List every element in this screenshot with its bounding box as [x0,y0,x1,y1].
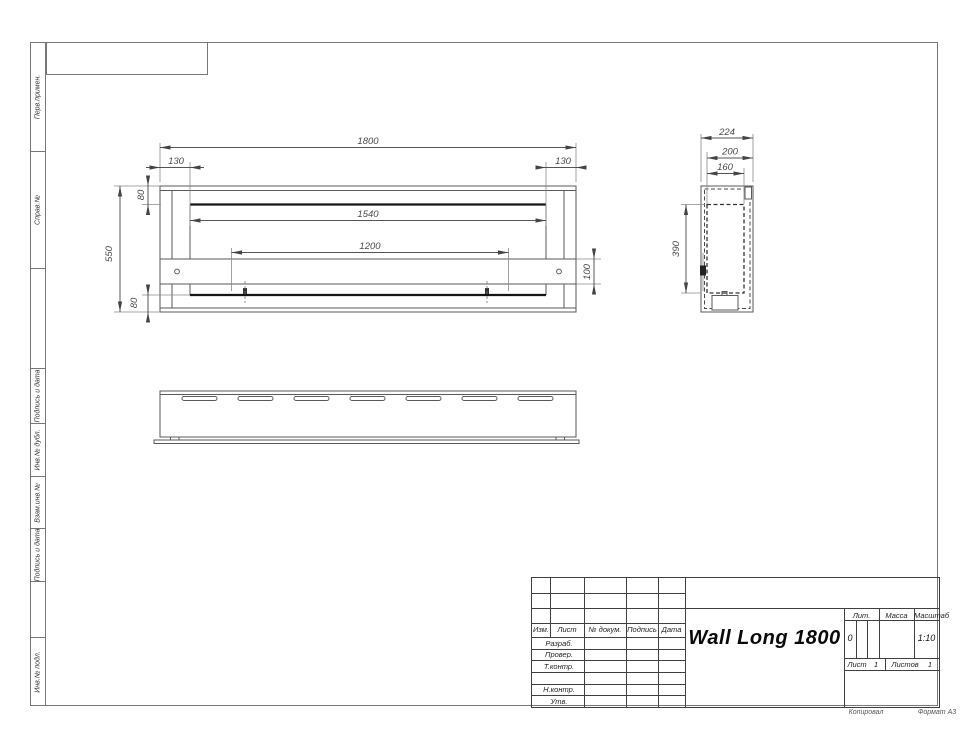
vent-slot [462,397,497,401]
tb-mass-label: Масса [879,612,914,620]
dim-side-depth: 224 [718,127,735,138]
tb-col-data: Дата [658,626,685,634]
document-title: Wall Long 1800 [685,612,844,664]
tb-sheets-label: Листов [887,661,923,669]
format-label: Формат А3 [901,709,970,716]
vent-slot [294,397,329,401]
base-plate [154,440,579,444]
tb-lit-label: Лит. [844,612,879,620]
drawing-sheet: Перв.примен. Справ.№ Подпись и дата Инв.… [0,0,970,749]
dim-front-left-offset: 130 [168,156,185,167]
tb-sheet-label: Лист [845,661,869,669]
vent-slot [406,397,441,401]
tb-scale-label: Масштаб [914,612,939,620]
dim-front-bottom-band: 80 [129,297,140,308]
dim-front-right-offset: 130 [555,156,572,167]
tb-col-docnum: № докум. [584,626,626,634]
tb-col-list: Лист [550,626,584,634]
tb-row-prover: Провер. [534,651,584,659]
dim-side-inner-depth: 200 [721,147,739,158]
tb-row-tkontr: Т.контр. [534,663,584,671]
tb-row-nkontr: Н.контр. [534,686,584,694]
vent-slot [518,397,553,401]
title-block: Изм. Лист № докум. Подпись Дата Разраб. … [531,577,940,708]
tb-sheets-value: 1 [923,661,937,669]
copied-by-label: Копировал [830,709,902,716]
dim-side-opening-depth: 160 [717,162,734,173]
vent-slot [238,397,273,401]
tb-row-utv: Утв. [534,698,584,706]
tb-col-podpis: Подпись [626,626,658,634]
side-top-bracket [745,187,752,199]
side-bottom-block [712,296,738,311]
tb-lit-value: 0 [844,634,856,643]
dim-front-bar-height: 100 [582,263,593,280]
tb-row-razrab: Разраб. [534,640,584,648]
dim-side-opening-height: 390 [671,240,682,257]
dim-front-total-width: 1800 [357,136,379,147]
vent-slot [350,397,385,401]
side-wall-bracket [700,266,706,276]
dim-front-bar-span: 1200 [359,241,381,252]
tb-sheet-value: 1 [869,661,883,669]
dim-front-total-height: 550 [104,245,115,262]
front-view: 1800 130 130 1540 1200 80 550 80 100 [104,136,601,321]
bottom-view [154,391,579,444]
tb-col-izm: Изм. [532,626,550,634]
side-view: 224 200 160 390 [671,127,753,312]
vent-slot [182,397,217,401]
dim-front-top-band: 80 [136,189,147,200]
dim-front-opening-width: 1540 [357,209,379,220]
tb-scale-value: 1:10 [914,634,939,643]
mounting-bar [160,259,576,284]
